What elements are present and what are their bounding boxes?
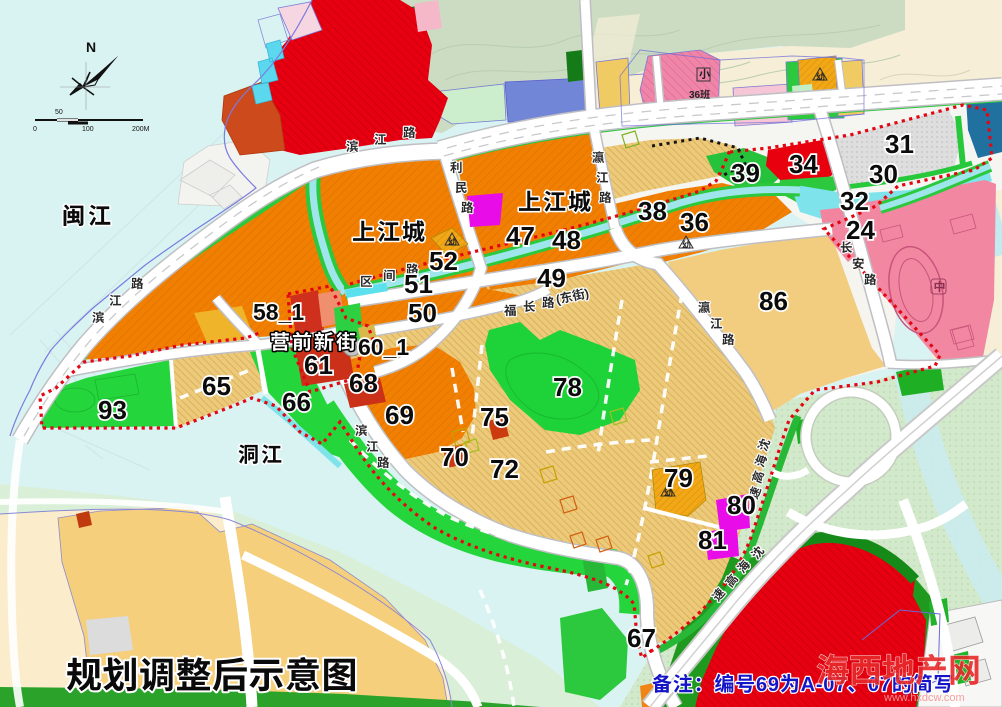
- svg-text:34: 34: [789, 149, 818, 179]
- svg-text:50: 50: [408, 298, 437, 328]
- svg-text:58_1: 58_1: [253, 299, 304, 325]
- svg-text:75: 75: [480, 402, 509, 432]
- svg-text:86: 86: [759, 286, 788, 316]
- svg-text:72: 72: [490, 454, 519, 484]
- svg-text:81: 81: [698, 525, 727, 555]
- svg-text:69: 69: [756, 674, 780, 696]
- svg-text:80: 80: [727, 490, 756, 520]
- svg-text:61: 61: [304, 350, 333, 380]
- svg-text:24: 24: [846, 215, 875, 245]
- svg-text:48: 48: [552, 225, 581, 255]
- svg-text:68: 68: [349, 368, 378, 398]
- svg-text:65: 65: [202, 371, 231, 401]
- svg-text:0: 0: [33, 126, 37, 133]
- svg-text:N: N: [86, 39, 96, 55]
- svg-text:200M: 200M: [132, 126, 150, 133]
- svg-text:93: 93: [98, 395, 127, 425]
- svg-text:100: 100: [82, 126, 94, 133]
- svg-text:50: 50: [55, 109, 63, 116]
- svg-text:38: 38: [638, 196, 667, 226]
- svg-text:30: 30: [869, 159, 898, 189]
- svg-text:67: 67: [627, 623, 656, 653]
- svg-text:31: 31: [885, 129, 914, 159]
- svg-text:32: 32: [840, 186, 869, 216]
- svg-text:66: 66: [282, 387, 311, 417]
- svg-text:47: 47: [506, 221, 535, 251]
- svg-text:36: 36: [680, 207, 709, 237]
- svg-text:70: 70: [440, 442, 469, 472]
- svg-text:36: 36: [689, 90, 701, 101]
- svg-text:69: 69: [385, 400, 414, 430]
- svg-text:78: 78: [553, 372, 582, 402]
- svg-text:79: 79: [664, 463, 693, 493]
- svg-text:39: 39: [731, 158, 760, 188]
- svg-text:60_1: 60_1: [358, 334, 409, 360]
- svg-text:www.hxdcw.com: www.hxdcw.com: [883, 692, 965, 704]
- svg-text:52: 52: [429, 246, 458, 276]
- svg-text:49: 49: [537, 263, 566, 293]
